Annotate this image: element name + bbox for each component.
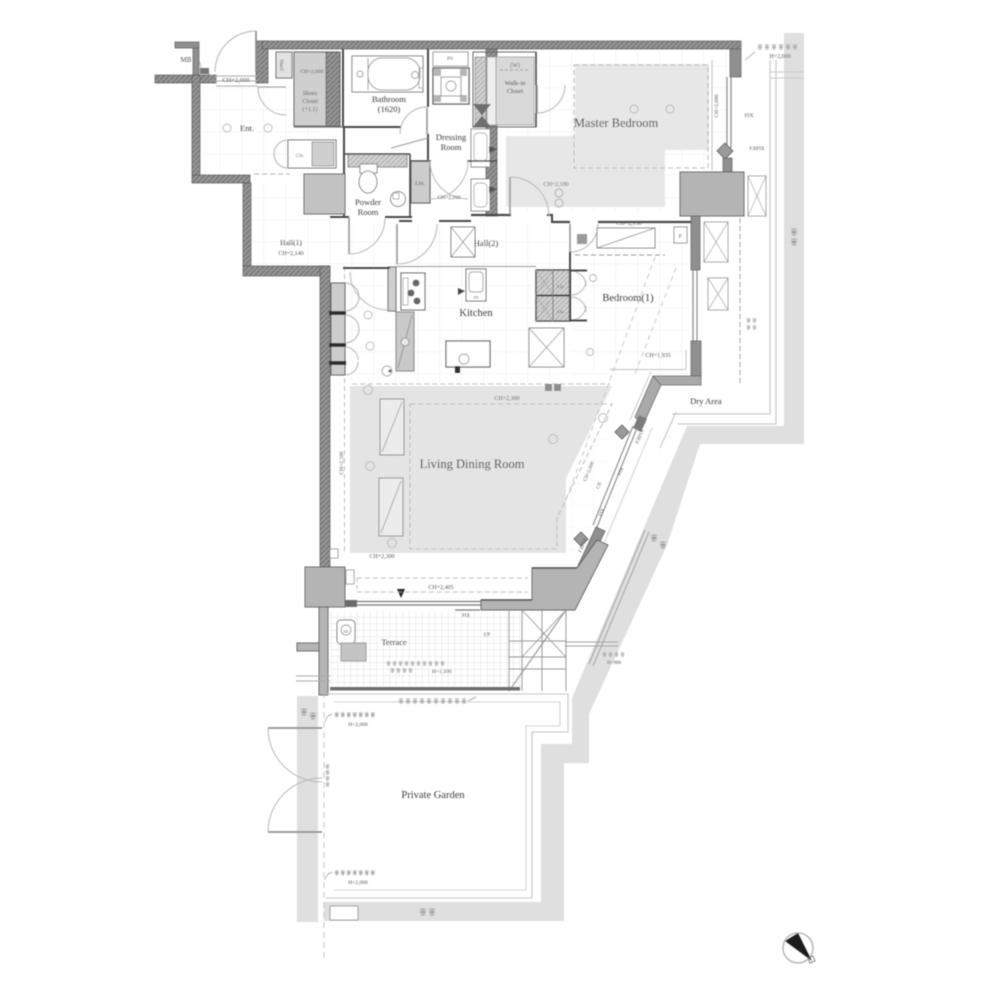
svg-text:H=2,000: H=2,000: [769, 54, 790, 60]
svg-text:Bedroom(1): Bedroom(1): [602, 293, 654, 304]
svg-text:Living Dining Room: Living Dining Room: [420, 457, 525, 471]
svg-text:CH=2,300: CH=2,300: [369, 554, 394, 560]
svg-text:CH=2,405: CH=2,405: [428, 585, 453, 591]
svg-text:CH=2,100: CH=2,100: [543, 182, 568, 188]
svg-text:Terrace: Terrace: [381, 637, 407, 647]
svg-text:CH=2,150: CH=2,150: [616, 221, 641, 227]
svg-text:H=2,000: H=2,000: [348, 722, 368, 728]
svg-text:H=900: H=900: [607, 661, 621, 666]
svg-text:Lin.: Lin.: [415, 181, 425, 187]
svg-text:MB: MB: [181, 56, 192, 64]
svg-text:FIX: FIX: [462, 614, 470, 619]
svg-text:Dry Area: Dry Area: [690, 396, 722, 406]
svg-text:Shoes: Shoes: [303, 91, 318, 97]
svg-text:Bathroom: Bathroom: [372, 94, 406, 104]
svg-text:Room: Room: [441, 142, 462, 152]
svg-text:UP: UP: [484, 633, 491, 638]
svg-text:FIX: FIX: [745, 113, 754, 119]
svg-text:CH=2,100: CH=2,100: [339, 451, 345, 474]
svg-text:Hall(2): Hall(2): [474, 238, 499, 248]
svg-text:Walk-in: Walk-in: [505, 80, 527, 87]
svg-text:CH=2,300: CH=2,300: [494, 396, 519, 402]
svg-text:CH=2,600: CH=2,600: [714, 94, 720, 117]
svg-text:H=2,000: H=2,000: [348, 880, 368, 886]
svg-text:Clo.: Clo.: [296, 154, 304, 159]
svg-text:Master Bedroom: Master Bedroom: [574, 116, 659, 130]
svg-text:Shelf: Shelf: [278, 59, 285, 71]
svg-text:CH=2,140: CH=2,140: [278, 251, 303, 257]
svg-text:Room: Room: [358, 207, 379, 217]
svg-text:Closet: Closet: [302, 99, 318, 105]
svg-text:H=1,100: H=1,100: [432, 669, 452, 675]
svg-text:Clo.: Clo.: [557, 284, 565, 289]
svg-text:Clo.: Clo.: [557, 309, 565, 314]
svg-text:Hall(1): Hall(1): [280, 238, 302, 247]
svg-text:Closet: Closet: [507, 88, 524, 95]
svg-text:Ent.: Ent.: [240, 123, 254, 133]
svg-text:F.BFIX: F.BFIX: [749, 147, 764, 152]
svg-text:CH=1,935: CH=1,935: [645, 353, 670, 359]
svg-text:CH=2,000: CH=2,000: [222, 77, 249, 84]
svg-text:Private Garden: Private Garden: [401, 790, 465, 801]
svg-text:CH=2,600: CH=2,600: [300, 69, 323, 75]
svg-text:(W): (W): [510, 62, 520, 69]
svg-text:PS: PS: [473, 295, 479, 300]
svg-text:SK: SK: [343, 629, 350, 634]
svg-text:Powder: Powder: [355, 197, 381, 207]
svg-text:CH=2,200: CH=2,200: [437, 195, 460, 201]
svg-text:Dressing: Dressing: [436, 132, 467, 142]
svg-text:PS: PS: [447, 56, 453, 62]
svg-text:(+1.1): (+1.1): [303, 106, 318, 113]
svg-text:(1620): (1620): [378, 104, 401, 114]
svg-text:Kitchen: Kitchen: [459, 308, 493, 319]
